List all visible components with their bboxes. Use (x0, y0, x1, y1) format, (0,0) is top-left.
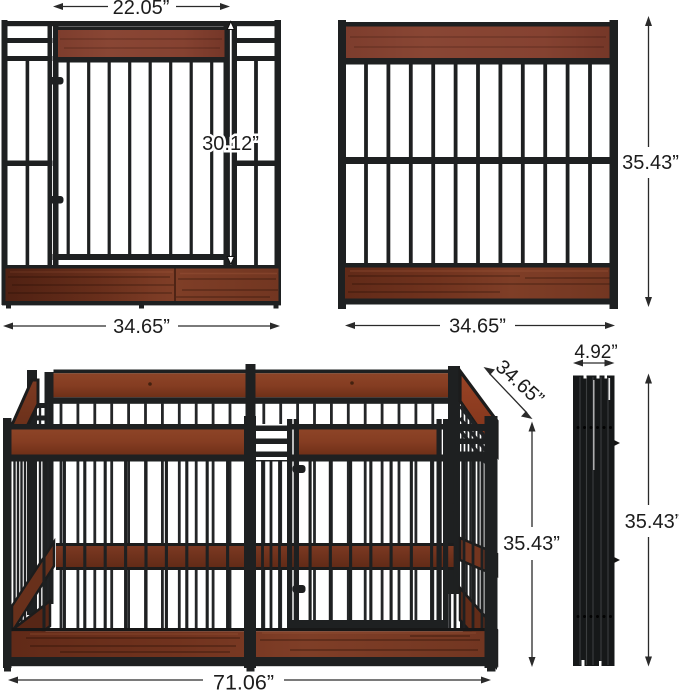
svg-text:35.43”: 35.43” (503, 533, 560, 555)
svg-text:30.12”: 30.12” (202, 133, 259, 155)
svg-text:34.65”: 34.65” (113, 316, 170, 338)
svg-text:34.65”: 34.65” (449, 316, 506, 338)
svg-text:22.05”: 22.05” (113, 0, 170, 19)
svg-text:4.92”: 4.92” (574, 342, 617, 363)
svg-text:71.06”: 71.06” (213, 671, 274, 693)
svg-text:35.43”: 35.43” (625, 511, 679, 533)
svg-text:35.43”: 35.43” (622, 152, 679, 174)
